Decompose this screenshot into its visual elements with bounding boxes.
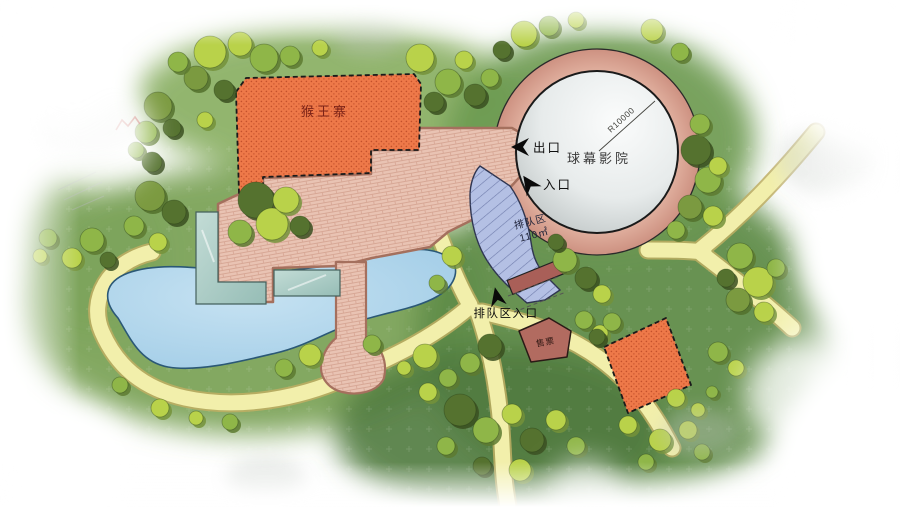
tree [520,428,544,452]
tree [690,114,710,134]
tree [727,243,753,269]
tree [162,200,186,224]
tree [197,112,213,128]
tree [437,437,455,455]
tree [135,181,165,211]
tree [603,313,621,331]
tree [667,389,685,407]
tree [575,267,597,289]
tree [124,216,144,236]
tree [363,335,381,353]
tree [275,359,293,377]
tree [726,288,750,312]
entrance-label: 入口 [543,178,572,192]
tree [250,44,278,72]
tree [151,399,169,417]
exit-label: 出口 [533,141,562,155]
tree [273,187,299,213]
tree [80,228,104,252]
tree [671,43,689,61]
tree [473,417,499,443]
tree [593,285,611,303]
tree [280,46,300,66]
tree [429,275,445,291]
tree [548,234,564,250]
tree [706,386,718,398]
tree [290,216,310,236]
tree [424,92,444,112]
tree [728,360,744,376]
tree [708,342,728,362]
dome-theater-label: 球幕影院 [567,151,631,166]
tree [589,329,605,345]
tree [100,252,116,268]
tree [703,206,723,226]
tree [442,246,462,266]
tree [717,269,735,287]
tree [678,195,702,219]
main-building-label: 猴王寨 [301,104,349,119]
site-plan-map: 猴王寨 R10000 球幕影院 出口 入口 排队区 110㎡ 排队区入口 售票 [0,0,900,507]
tree [478,334,502,358]
tree [144,92,172,120]
queue-entrance-label: 排队区入口 [474,306,539,320]
tree [546,410,566,430]
tree [435,69,461,95]
tree [619,416,637,434]
tree [189,411,203,425]
tree [168,52,188,72]
tree [214,80,234,100]
tree [444,394,476,426]
tree [575,311,593,329]
tree [413,344,437,368]
tree [464,84,486,106]
tree [455,51,473,69]
tree [419,383,437,401]
tree [681,135,711,165]
tree [460,353,480,373]
tree [163,119,181,137]
tree [112,377,128,393]
tree [299,344,321,366]
tree [406,44,434,72]
tree [149,233,167,251]
tree [397,361,411,375]
tree [222,414,238,430]
tree [439,369,457,387]
tree [709,157,727,175]
tree [502,404,522,424]
tree [481,69,499,87]
tree [667,221,685,239]
tree [228,220,252,244]
tree [567,437,585,455]
site-plan-canvas: 猴王寨 R10000 球幕影院 出口 入口 排队区 110㎡ 排队区入口 售票 [0,0,900,507]
